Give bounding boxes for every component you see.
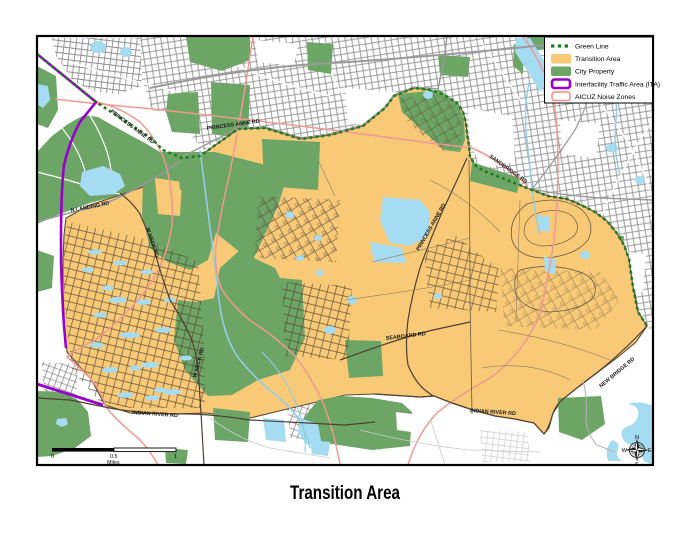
svg-text:Transition Area: Transition Area	[290, 483, 400, 504]
svg-text:Miles: Miles	[107, 460, 120, 466]
svg-text:City Property: City Property	[575, 69, 615, 76]
svg-text:N: N	[635, 435, 639, 441]
svg-text:Green Line: Green Line	[575, 44, 609, 51]
svg-text:E: E	[648, 448, 652, 454]
svg-text:1: 1	[174, 454, 177, 460]
svg-text:Transition Area: Transition Area	[575, 56, 621, 63]
svg-text:S: S	[635, 462, 639, 468]
svg-text:W: W	[622, 448, 628, 454]
svg-text:AICUZ Noise Zones: AICUZ Noise Zones	[575, 94, 636, 101]
svg-text:0: 0	[51, 454, 54, 460]
svg-text:Interfacility Traffic Area (IT: Interfacility Traffic Area (ITA)	[575, 82, 660, 89]
